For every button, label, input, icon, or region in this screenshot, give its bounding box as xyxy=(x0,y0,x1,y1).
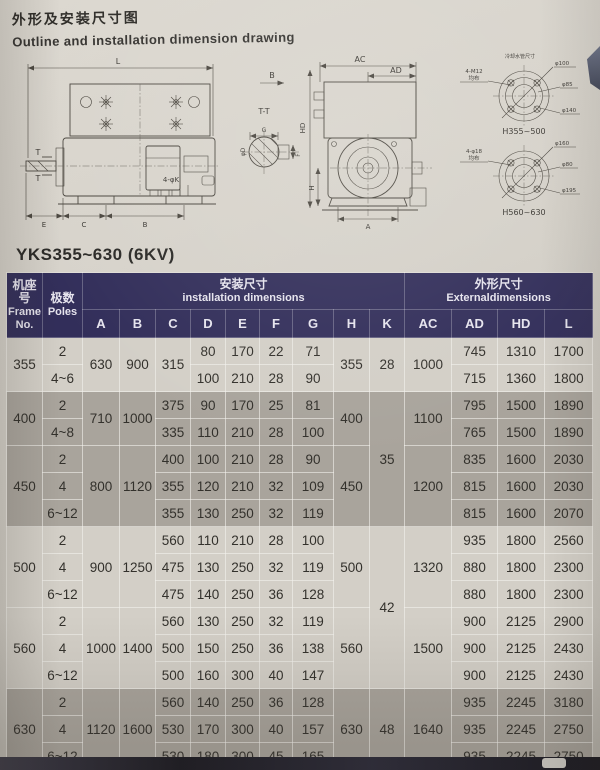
table-cell: 900 xyxy=(452,635,498,662)
dim-label-HD: HD xyxy=(299,123,307,134)
table-cell: 28 xyxy=(260,419,293,446)
table-cell: 900 xyxy=(83,527,120,608)
frame-no-cell: 400 xyxy=(7,392,43,446)
table-cell: 2750 xyxy=(545,716,593,743)
table-cell: 147 xyxy=(293,662,334,689)
table-cell: 450 xyxy=(334,446,370,527)
table-cell: 2430 xyxy=(545,662,593,689)
table-cell: 560 xyxy=(334,608,370,689)
header-external-dimensions: 外形尺寸 Externaldimensions xyxy=(405,273,593,310)
frame-no-cell: 450 xyxy=(7,446,43,527)
table-cell: 2245 xyxy=(498,716,545,743)
table-cell: 170 xyxy=(226,338,260,365)
flange1-dia-mid: φ85 xyxy=(562,82,573,88)
header-install-en: installation dimensions xyxy=(83,292,404,305)
poles-cell: 6~12 xyxy=(43,662,83,689)
table-cell: 1890 xyxy=(545,392,593,419)
page-header: 外形及安装尺寸图 Outline and installation dimens… xyxy=(12,5,295,50)
col-header-H: H xyxy=(334,310,370,338)
poles-cell: 2 xyxy=(43,446,83,473)
flange-detail-2: 4-φ18 均布 φ160 φ80 φ195 H560~630 xyxy=(460,141,580,217)
poles-cell: 6~12 xyxy=(43,581,83,608)
col-header-A: A xyxy=(83,310,120,338)
table-cell: 530 xyxy=(156,716,191,743)
table-cell: 2125 xyxy=(498,662,545,689)
table-cell: 140 xyxy=(191,689,226,716)
table-cell: 1120 xyxy=(120,446,156,527)
table-cell: 36 xyxy=(260,689,293,716)
section-mark-T-top: T xyxy=(35,148,41,157)
table-cell: 250 xyxy=(226,608,260,635)
table-cell: 25 xyxy=(260,392,293,419)
table-cell: 1800 xyxy=(498,554,545,581)
flange1-pattern-label: 均布 xyxy=(468,74,480,82)
table-cell: 250 xyxy=(226,581,260,608)
table-cell: 130 xyxy=(191,608,226,635)
frame-no-cell: 560 xyxy=(7,608,43,689)
table-cell: 800 xyxy=(83,446,120,527)
table-cell: 170 xyxy=(226,392,260,419)
table-cell: 110 xyxy=(191,419,226,446)
header-external-en: Externaldimensions xyxy=(405,292,592,305)
table-cell: 210 xyxy=(226,527,260,554)
table-cell: 109 xyxy=(293,473,334,500)
motor-side-view: L 4-φK T T xyxy=(20,57,220,229)
table-cell: 1000 xyxy=(405,338,452,392)
flange1-bolts-label: 4-M12 xyxy=(465,69,482,75)
table-cell: 560 xyxy=(156,608,191,635)
table-cell: 32 xyxy=(260,608,293,635)
poles-cell: 4 xyxy=(43,635,83,662)
table-row: 400 2 710 1000 375 90 170 25 81 400 35 1… xyxy=(7,392,593,419)
table-cell: 130 xyxy=(191,500,226,527)
table-cell: 500 xyxy=(334,527,370,608)
dimension-table: 机座号 Frame No. 极数 Poles 安装尺寸 installation… xyxy=(6,272,593,770)
poles-cell: 2 xyxy=(43,689,83,716)
table-cell: 71 xyxy=(293,338,334,365)
table-row: 560 2 1000 1400 560 130 250 32 119 560 1… xyxy=(7,608,593,635)
table-cell: 160 xyxy=(191,662,226,689)
table-cell: 1200 xyxy=(405,446,452,527)
flange2-name: H560~630 xyxy=(502,208,545,217)
table-cell: 900 xyxy=(120,338,156,392)
poles-cell: 2 xyxy=(43,527,83,554)
dim-label-AD: AD xyxy=(390,66,402,75)
table-cell: 400 xyxy=(156,446,191,473)
table-cell: 210 xyxy=(226,446,260,473)
view-label-B: B xyxy=(269,71,275,80)
table-cell: 100 xyxy=(293,527,334,554)
table-cell: 36 xyxy=(260,635,293,662)
dim-label-AC: AC xyxy=(355,55,366,64)
dim-label-C: C xyxy=(82,221,87,229)
table-cell: 250 xyxy=(226,554,260,581)
table-cell: 40 xyxy=(260,716,293,743)
table-cell: 1800 xyxy=(498,581,545,608)
table-cell: 210 xyxy=(226,419,260,446)
table-cell: 119 xyxy=(293,554,334,581)
table-cell: 300 xyxy=(226,662,260,689)
catalog-page-photo: 外形及安装尺寸图 Outline and installation dimens… xyxy=(0,0,600,770)
table-row: 630 2 1120 1600 560 140 250 36 128 630 4… xyxy=(7,689,593,716)
table-cell: 2300 xyxy=(545,554,593,581)
header-poles: 极数 Poles xyxy=(43,273,83,338)
dimension-drawing: L 4-φK T T xyxy=(8,48,592,238)
table-cell: 355 xyxy=(334,338,370,392)
col-header-F: F xyxy=(260,310,293,338)
table-cell: 1360 xyxy=(498,365,545,392)
table-cell: 715 xyxy=(452,365,498,392)
shaft-section-detail: T-T G F φD xyxy=(240,107,302,178)
col-header-B: B xyxy=(120,310,156,338)
table-cell: 1100 xyxy=(405,392,452,446)
table-cell: 210 xyxy=(226,365,260,392)
table-cell: 1700 xyxy=(545,338,593,365)
photo-background-chip xyxy=(542,758,566,768)
table-cell: 36 xyxy=(260,581,293,608)
table-cell: 475 xyxy=(156,554,191,581)
table-cell: 355 xyxy=(156,500,191,527)
table-cell: 2300 xyxy=(545,581,593,608)
table-cell: 22 xyxy=(260,338,293,365)
table-cell: 1000 xyxy=(120,392,156,446)
header-frame-zh: 机座号 xyxy=(7,279,42,307)
table-cell: 1600 xyxy=(498,473,545,500)
table-cell: 28 xyxy=(370,338,405,392)
table-cell: 150 xyxy=(191,635,226,662)
header-external-zh: 外形尺寸 xyxy=(405,278,592,292)
dim-label-A: A xyxy=(366,223,371,231)
dim-label-L: L xyxy=(116,57,121,66)
table-cell: 128 xyxy=(293,689,334,716)
table-cell: 475 xyxy=(156,581,191,608)
table-cell: 100 xyxy=(191,365,226,392)
table-cell: 1500 xyxy=(498,392,545,419)
table-cell: 250 xyxy=(226,635,260,662)
poles-cell: 6~12 xyxy=(43,500,83,527)
table-cell: 119 xyxy=(293,500,334,527)
table-cell: 1310 xyxy=(498,338,545,365)
table-cell: 315 xyxy=(156,338,191,392)
table-cell: 560 xyxy=(156,527,191,554)
table-cell: 400 xyxy=(334,392,370,446)
table-cell: 630 xyxy=(83,338,120,392)
col-header-G: G xyxy=(293,310,334,338)
flange1-dia-top: φ100 xyxy=(555,61,570,67)
col-header-L: L xyxy=(545,310,593,338)
dim-label-E: E xyxy=(42,221,46,229)
table-cell: 815 xyxy=(452,500,498,527)
frame-no-cell: 500 xyxy=(7,527,43,608)
photo-background-strip xyxy=(0,757,600,770)
section-mark-T-bottom: T xyxy=(35,174,41,183)
table-cell: 1890 xyxy=(545,419,593,446)
table-cell: 210 xyxy=(226,473,260,500)
col-header-K: K xyxy=(370,310,405,338)
table-cell: 935 xyxy=(452,689,498,716)
table-cell: 335 xyxy=(156,419,191,446)
table-cell: 35 xyxy=(370,392,405,527)
flange-note: 冷却水管尺寸 xyxy=(505,53,535,60)
col-header-C: C xyxy=(156,310,191,338)
table-cell: 2430 xyxy=(545,635,593,662)
table-cell: 815 xyxy=(452,473,498,500)
table-cell: 250 xyxy=(226,689,260,716)
col-header-AD: AD xyxy=(452,310,498,338)
table-cell: 2030 xyxy=(545,473,593,500)
table-cell: 130 xyxy=(191,554,226,581)
dim-label-B: B xyxy=(143,221,148,229)
poles-cell: 4~8 xyxy=(43,419,83,446)
table-cell: 138 xyxy=(293,635,334,662)
table-cell: 2560 xyxy=(545,527,593,554)
header-poles-zh: 极数 xyxy=(43,292,82,306)
table-cell: 1400 xyxy=(120,608,156,689)
table-cell: 2125 xyxy=(498,608,545,635)
section-label-TT: T-T xyxy=(257,107,269,116)
poles-cell: 2 xyxy=(43,608,83,635)
table-cell: 1320 xyxy=(405,527,452,608)
table-cell: 900 xyxy=(452,608,498,635)
table-cell: 300 xyxy=(226,716,260,743)
table-cell: 250 xyxy=(226,500,260,527)
table-cell: 500 xyxy=(156,662,191,689)
page-title-en: Outline and installation dimension drawi… xyxy=(12,30,295,50)
poles-cell: 4 xyxy=(43,473,83,500)
table-cell: 28 xyxy=(260,446,293,473)
table-cell: 32 xyxy=(260,473,293,500)
table-cell: 100 xyxy=(293,419,334,446)
table-row: 355 2 630 900 315 80 170 22 71 355 28 10… xyxy=(7,338,593,365)
table-cell: 120 xyxy=(191,473,226,500)
table-cell: 1250 xyxy=(120,527,156,608)
table-cell: 2125 xyxy=(498,635,545,662)
table-cell: 28 xyxy=(260,365,293,392)
table-cell: 375 xyxy=(156,392,191,419)
table-cell: 90 xyxy=(293,446,334,473)
table-cell: 40 xyxy=(260,662,293,689)
table-cell: 3180 xyxy=(545,689,593,716)
table-row: 450 2 800 1120 400 100 210 28 90 450 120… xyxy=(7,446,593,473)
dim-label-H: H xyxy=(308,185,316,190)
table-cell: 90 xyxy=(191,392,226,419)
table-cell: 935 xyxy=(452,716,498,743)
table-cell: 795 xyxy=(452,392,498,419)
table-cell: 765 xyxy=(452,419,498,446)
table-cell: 1500 xyxy=(498,419,545,446)
table-cell: 1500 xyxy=(405,608,452,689)
poles-cell: 4 xyxy=(43,716,83,743)
header-installation-dimensions: 安装尺寸 installation dimensions xyxy=(83,273,405,310)
table-cell: 2030 xyxy=(545,446,593,473)
poles-cell: 4 xyxy=(43,554,83,581)
table-cell: 28 xyxy=(260,527,293,554)
col-header-AC: AC xyxy=(405,310,452,338)
flange1-dia-bot: φ140 xyxy=(562,108,577,114)
flange2-dia-mid: φ80 xyxy=(562,162,573,168)
table-cell: 1000 xyxy=(83,608,120,689)
table-cell: 2070 xyxy=(545,500,593,527)
poles-cell: 2 xyxy=(43,338,83,365)
header-install-zh: 安装尺寸 xyxy=(83,278,404,292)
page-title-zh: 外形及安装尺寸图 xyxy=(12,5,295,30)
col-header-D: D xyxy=(191,310,226,338)
table-cell: 140 xyxy=(191,581,226,608)
table-cell: 935 xyxy=(452,527,498,554)
table-cell: 119 xyxy=(293,608,334,635)
table-cell: 110 xyxy=(191,527,226,554)
poles-cell: 2 xyxy=(43,392,83,419)
table-cell: 32 xyxy=(260,500,293,527)
dim-label-phiD: φD xyxy=(240,147,247,156)
flange2-bolts-label: 4-φ18 xyxy=(466,149,483,155)
flange2-dia-bot: φ195 xyxy=(562,188,577,194)
table-cell: 81 xyxy=(293,392,334,419)
header-poles-en: Poles xyxy=(43,306,82,319)
table-cell: 880 xyxy=(452,554,498,581)
frame-no-cell: 355 xyxy=(7,338,43,392)
table-cell: 710 xyxy=(83,392,120,446)
table-cell: 100 xyxy=(191,446,226,473)
table-cell: 500 xyxy=(156,635,191,662)
table-cell: 560 xyxy=(156,689,191,716)
table-cell: 42 xyxy=(370,527,405,689)
table-cell: 128 xyxy=(293,581,334,608)
table-cell: 1600 xyxy=(498,500,545,527)
view-direction-B: B xyxy=(260,71,284,83)
flange-detail-1: 冷却水管尺寸 4-M12 均布 φ100 φ85 φ140 H355~500 xyxy=(460,53,580,136)
table-cell: 80 xyxy=(191,338,226,365)
col-header-HD: HD xyxy=(498,310,545,338)
table-cell: 157 xyxy=(293,716,334,743)
header-frame-en: Frame No. xyxy=(7,306,42,331)
table-cell: 170 xyxy=(191,716,226,743)
flange2-dia-top: φ160 xyxy=(555,141,570,147)
col-header-E: E xyxy=(226,310,260,338)
table-cell: 1800 xyxy=(498,527,545,554)
dim-label-F: F xyxy=(295,153,302,157)
model-heading: YKS355~630 (6KV) xyxy=(16,245,175,265)
table-row: 500 2 900 1250 560 110 210 28 100 500 42… xyxy=(7,527,593,554)
poles-cell: 4~6 xyxy=(43,365,83,392)
table-cell: 32 xyxy=(260,554,293,581)
flange2-pattern-label: 均布 xyxy=(468,154,480,162)
motor-end-view: AC AD HD H A xyxy=(299,55,432,231)
table-cell: 880 xyxy=(452,581,498,608)
table-cell: 1800 xyxy=(545,365,593,392)
table-cell: 90 xyxy=(293,365,334,392)
header-frame-no: 机座号 Frame No. xyxy=(7,273,43,338)
table-cell: 1600 xyxy=(498,446,545,473)
table-cell: 2245 xyxy=(498,689,545,716)
table-cell: 900 xyxy=(452,662,498,689)
flange1-name: H355~500 xyxy=(502,127,545,136)
table-cell: 355 xyxy=(156,473,191,500)
table-cell: 835 xyxy=(452,446,498,473)
table-cell: 2900 xyxy=(545,608,593,635)
table-cell: 745 xyxy=(452,338,498,365)
foot-holes-label: 4-φK xyxy=(163,176,180,184)
